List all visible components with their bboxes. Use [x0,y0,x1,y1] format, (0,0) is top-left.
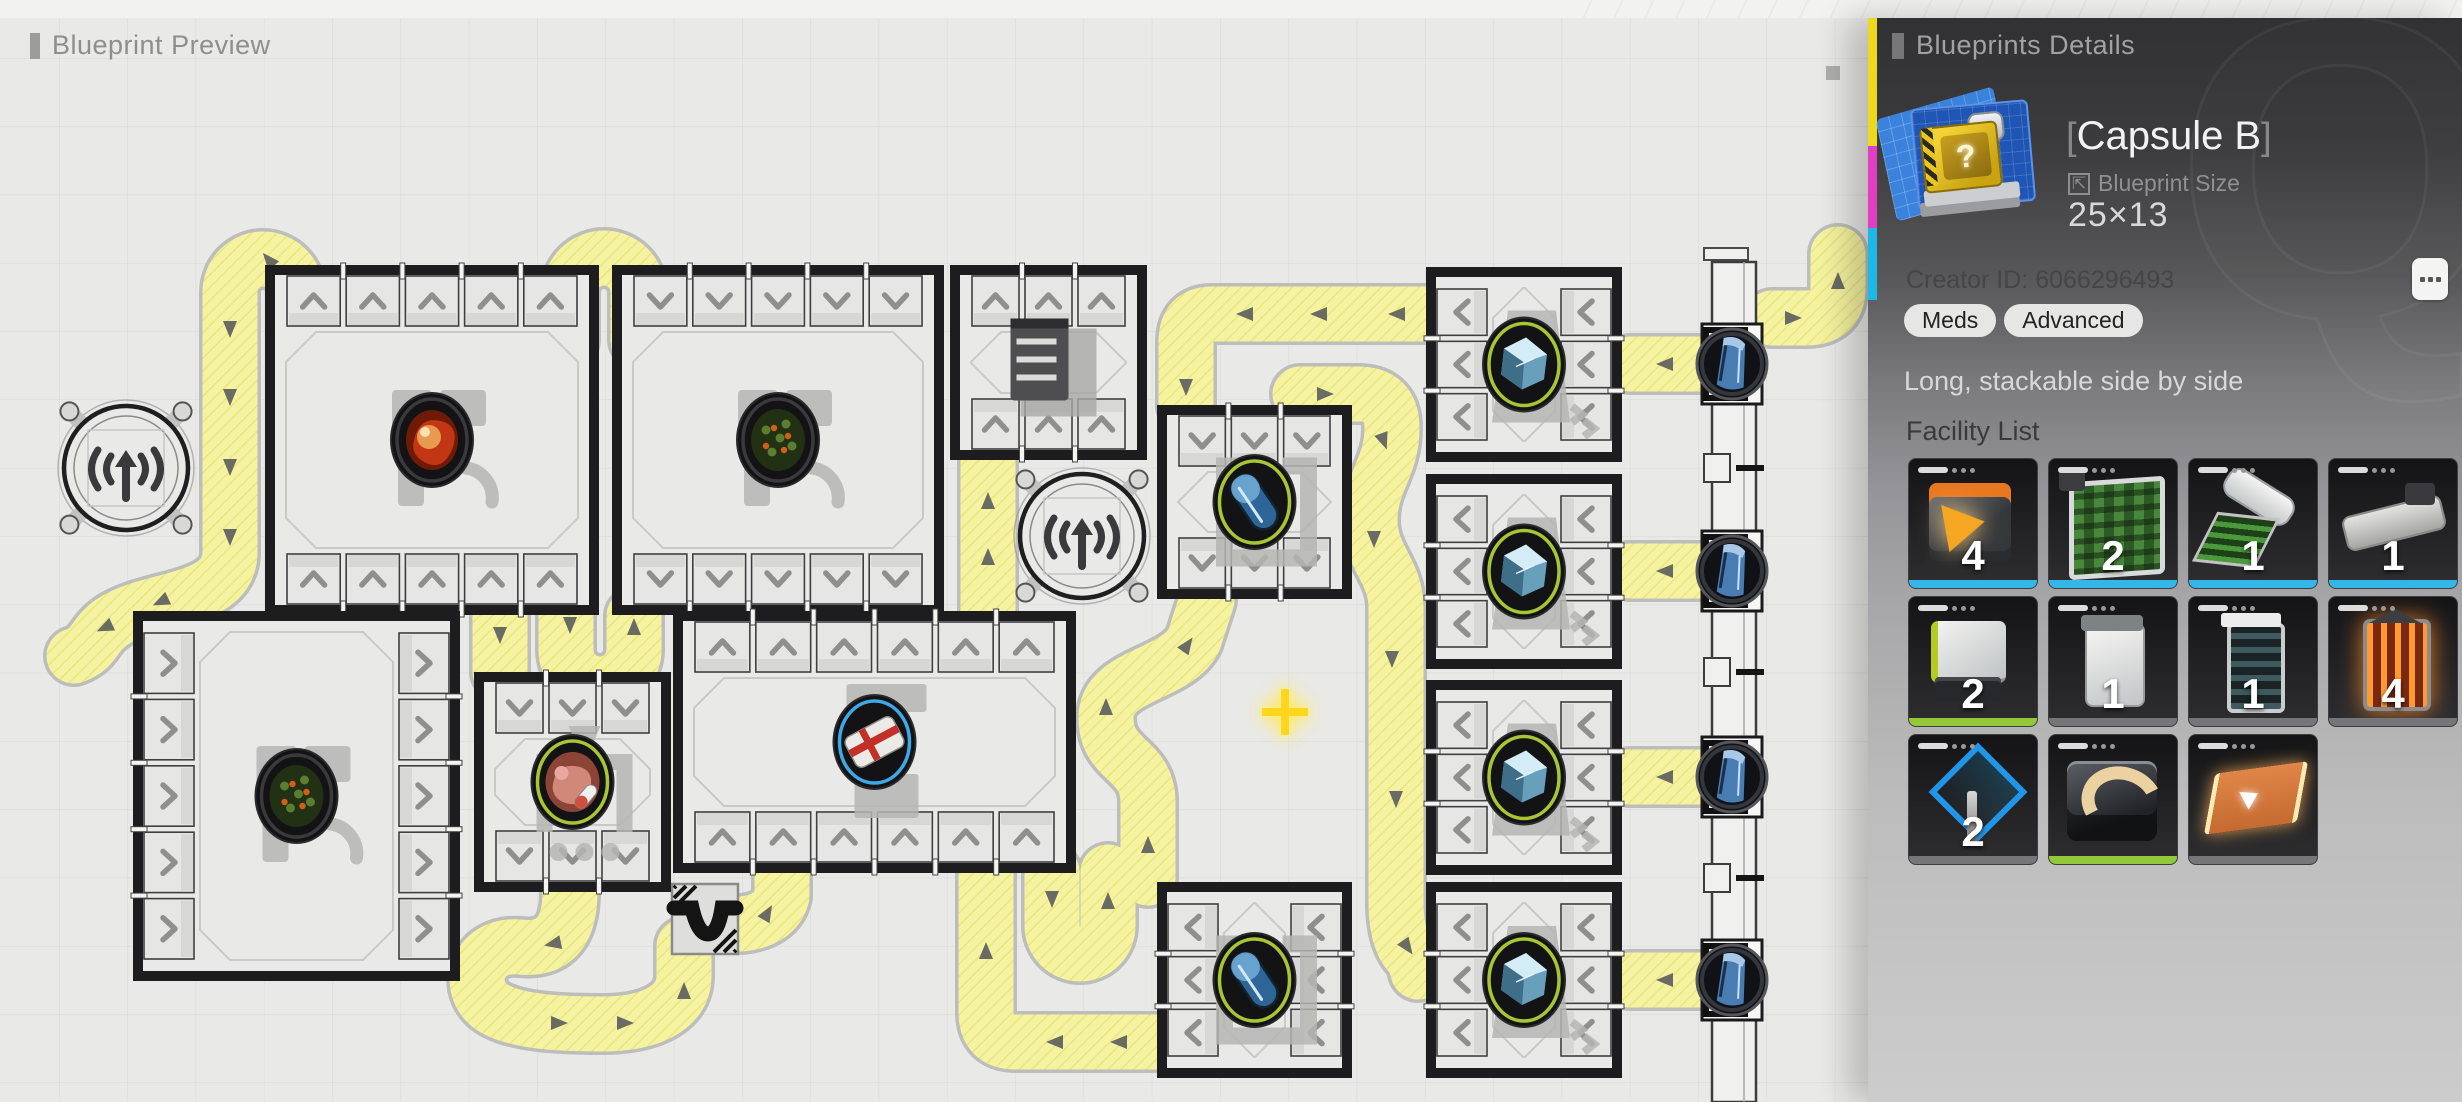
facility-room-cube-room-1[interactable] [1424,272,1624,457]
facility-list-header: Facility List [1906,416,2040,447]
facility-card-reaper[interactable]: 1 [2188,458,2318,589]
signal-tower[interactable] [58,400,194,536]
side-structure[interactable] [1697,248,1767,1102]
signal-tower[interactable] [1014,468,1150,604]
facility-card-mixer[interactable]: 2 [1908,596,2038,727]
card-accent-bar [2329,718,2457,726]
more-options-button[interactable] [2412,258,2448,300]
facility-room-storage-room[interactable] [955,263,1142,462]
sorter-icon [2055,751,2171,852]
facility-count: 2 [1909,670,2037,718]
facility-list: 4 2 1 1 2 1 [1908,458,2458,869]
card-accent-bar [2189,580,2317,588]
blueprint-size-row: ⇱ Blueprint Size [2068,170,2240,197]
facility-count: 1 [2049,670,2177,718]
card-accent-bar [2189,718,2317,726]
accent-stripes [1868,18,1877,300]
card-accent-bar [2049,580,2177,588]
blueprint-preview-header: Blueprint Preview [30,30,271,61]
blueprint-name-text: Capsule B [2077,114,2262,158]
tag-meds: Meds [1904,304,1996,337]
card-deco [2338,605,2395,611]
blueprint-details-panel: Q Blueprints Details ? [Capsule B] ⇱ Blu… [1868,18,2462,1102]
card-deco [2198,605,2255,611]
card-accent-bar [2049,718,2177,726]
card-deco [1918,605,1975,611]
placement-cursor-icon [1262,689,1308,735]
blueprint-item-icon: ? [1880,74,2068,226]
facility-card-cabinet[interactable]: 1 [2048,596,2178,727]
facility-card-aggregator[interactable]: 1 [2188,596,2318,727]
facility-room-cube-room-3[interactable] [1424,685,1624,870]
size-label: Blueprint Size [2098,170,2240,197]
card-accent-bar [2049,856,2177,864]
card-accent-bar [1909,718,2037,726]
facility-card-crusher[interactable]: 4 [1908,458,2038,589]
facility-count: 4 [1909,532,2037,580]
panel-title: Blueprints Details [1916,30,2135,61]
tag-advanced: Advanced [2004,304,2142,337]
facility-card-furnace[interactable]: 4 [2328,596,2458,727]
facility-room-grow-room-n[interactable] [617,263,939,617]
q-watermark: Q [2174,18,2462,416]
facility-room-capsule-room-n[interactable] [1162,403,1347,601]
facility-card-press[interactable]: 1 [2328,458,2458,589]
card-deco [2058,605,2115,611]
card-accent-bar [1909,580,2037,588]
card-deco [1918,467,1975,473]
header-bullet [1892,33,1904,59]
facility-count: 1 [2329,532,2457,580]
facility-count: 2 [1909,808,2037,856]
facility-card-belt[interactable] [2188,734,2318,865]
facility-count: 2 [2049,532,2177,580]
blueprint-preview-title: Blueprint Preview [52,30,271,61]
facility-count: 1 [2189,532,2317,580]
facility-room-process-room[interactable] [678,609,1071,875]
card-deco [2338,467,2395,473]
blueprint-canvas[interactable] [0,0,1868,1102]
size-expand-icon: ⇱ [2068,173,2090,195]
facility-count: 4 [2329,670,2457,718]
card-accent-bar [2189,856,2317,864]
facility-card-planter[interactable]: 2 [2048,458,2178,589]
blueprint-preview-area[interactable]: Blueprint Preview [0,0,1868,1102]
header-bullet [30,33,40,59]
map-marker-square [1826,66,1840,80]
tag-list: Meds Advanced [1904,304,2143,337]
size-value: 25×13 [2068,196,2169,235]
card-deco [2198,467,2255,473]
top-strip [0,0,2462,18]
facility-card-sorter[interactable] [2048,734,2178,865]
facility-count: 1 [2189,670,2317,718]
card-accent-bar [1909,856,2037,864]
facility-room-cube-room-2[interactable] [1424,479,1624,664]
conveyor-underpass[interactable] [672,884,738,954]
facility-card-signal[interactable]: 2 [1908,734,2038,865]
facility-room-grow-room-nw[interactable] [270,263,594,617]
card-deco [2058,467,2115,473]
card-deco [2198,743,2255,749]
facility-room-grow-room-w[interactable] [131,616,462,976]
card-deco [2058,743,2115,749]
card-deco [1918,743,1975,749]
facility-room-meat-room[interactable] [479,670,666,894]
app-screen: Blueprint Preview Q Blueprints Details ?… [0,0,2462,1102]
blueprint-description: Long, stackable side by side [1904,366,2243,397]
belt-icon [2195,751,2311,852]
blueprint-name: [Capsule B] [2066,114,2272,159]
panel-header: Blueprints Details [1892,30,2135,61]
facility-room-cube-room-4[interactable] [1424,887,1624,1073]
card-accent-bar [2329,580,2457,588]
facility-room-capsule-room-s[interactable] [1155,887,1354,1073]
creator-id: Creator ID: 6066296493 [1906,266,2174,295]
